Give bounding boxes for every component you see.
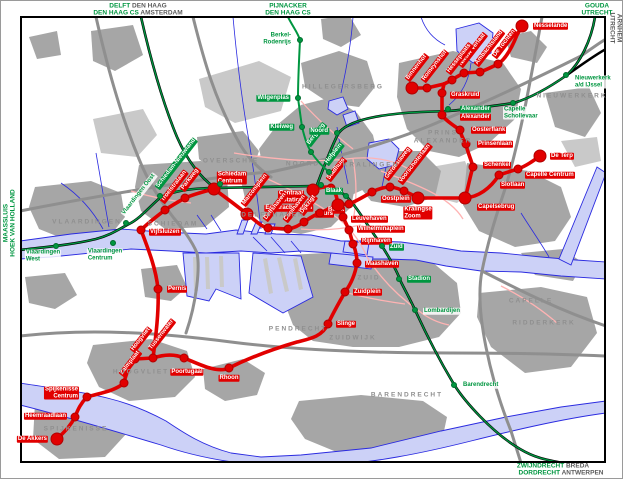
eemhaven	[183, 253, 241, 301]
metro-map: NesselandeDe TochtenAmbachtslandNieuw Ve…	[0, 0, 623, 479]
map-canvas	[1, 1, 623, 479]
